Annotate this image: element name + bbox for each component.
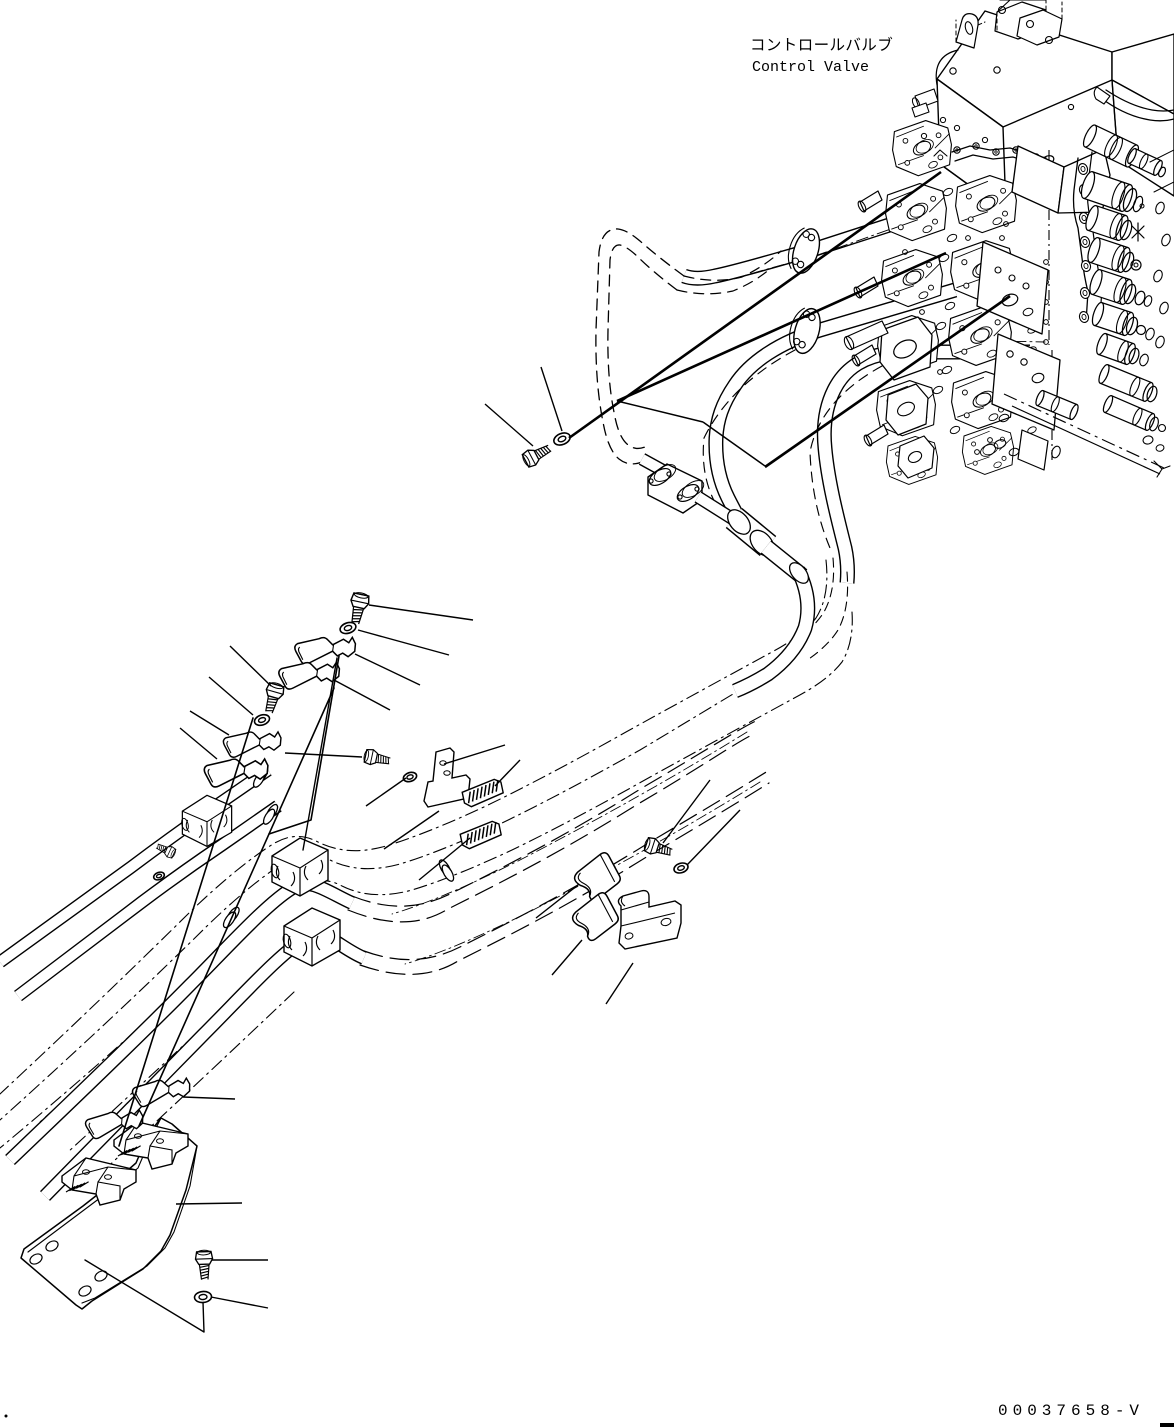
- svg-text:00037658-V: 00037658-V: [998, 1402, 1144, 1420]
- svg-text:Control Valve: Control Valve: [752, 59, 869, 76]
- svg-text:コントロールバルブ: コントロールバルブ: [750, 35, 893, 54]
